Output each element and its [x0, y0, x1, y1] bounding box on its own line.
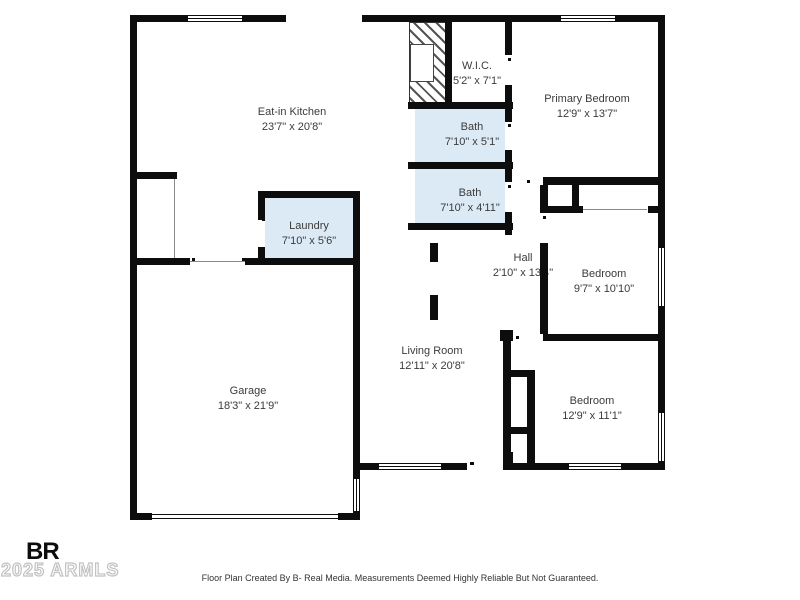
wall-segment — [258, 198, 265, 220]
floor-plan: Eat-in Kitchen 23'7" x 20'8" W.I.C. 5'2"… — [0, 0, 800, 600]
room-name: Bedroom — [574, 267, 634, 282]
wall-segment — [543, 334, 658, 341]
wall-segment — [130, 513, 152, 520]
room-name: Laundry — [282, 219, 336, 234]
room-dims: 7'10" x 5'6" — [282, 234, 336, 249]
wall-segment — [511, 370, 535, 377]
wall-segment — [503, 341, 511, 470]
wall-segment — [470, 462, 474, 465]
wall-segment — [353, 191, 360, 478]
wall-segment — [262, 218, 265, 221]
wall-segment — [445, 15, 452, 109]
room-label-living-room: Living Room 12'11" x 20'8" — [399, 344, 465, 374]
room-name: Living Room — [399, 344, 465, 359]
wall-segment — [137, 258, 190, 265]
room-label-primary-bedroom: Primary Bedroom 12'9" x 13'7" — [544, 92, 630, 122]
wall-segment — [508, 124, 511, 127]
room-name: W.I.C. — [453, 59, 501, 74]
room-dims: 7'10" x 5'1" — [445, 135, 499, 150]
water-heater-icon — [410, 44, 434, 82]
wall-segment — [543, 206, 583, 213]
room-name: Garage — [218, 384, 278, 399]
room-label-wic: W.I.C. 5'2" x 7'1" — [453, 59, 501, 89]
door-opening-line — [190, 261, 245, 262]
wall-segment — [408, 223, 513, 230]
wall-segment — [500, 330, 513, 341]
wall-segment — [511, 427, 535, 434]
wall-segment — [505, 212, 512, 235]
wall-segment — [622, 463, 665, 470]
wall-segment — [648, 206, 658, 213]
room-dims: 12'9" x 11'1" — [562, 409, 622, 424]
room-name: Bedroom — [562, 394, 622, 409]
window-symbol — [353, 478, 360, 512]
wall-segment — [408, 162, 513, 169]
wall-segment — [658, 15, 665, 247]
wall-segment — [543, 177, 658, 185]
wall-segment — [408, 102, 513, 109]
wall-segment — [192, 258, 195, 261]
wall-segment — [430, 243, 438, 262]
wall-segment — [137, 172, 177, 179]
room-dims: 12'9" x 13'7" — [544, 107, 630, 122]
disclaimer-text: Floor Plan Created By B- Real Media. Mea… — [0, 573, 800, 584]
room-name: Bath — [445, 120, 499, 135]
wall-segment — [243, 15, 286, 22]
wall-segment — [130, 15, 137, 520]
room-label-laundry: Laundry 7'10" x 5'6" — [282, 219, 336, 249]
room-label-bedroom-middle: Bedroom 9'7" x 10'10" — [574, 267, 634, 297]
door-opening-line — [583, 209, 647, 210]
wall-segment — [258, 247, 265, 260]
wall-segment — [353, 512, 360, 520]
window-symbol — [568, 463, 622, 470]
wall-segment — [540, 243, 548, 334]
wall-segment — [508, 58, 511, 61]
wall-segment — [527, 180, 530, 183]
wall-segment — [527, 377, 535, 470]
room-name: Primary Bedroom — [544, 92, 630, 107]
room-dims: 18'3" x 21'9" — [218, 399, 278, 414]
room-label-bath-upper: Bath 7'10" x 5'1" — [445, 120, 499, 150]
room-dims: 7'10" x 4'11" — [440, 201, 500, 216]
wall-segment — [503, 463, 568, 470]
room-dims: 5'2" x 7'1" — [453, 74, 501, 89]
room-dims: 12'11" x 20'8" — [399, 359, 465, 374]
wall-segment — [505, 22, 512, 55]
room-label-garage: Garage 18'3" x 21'9" — [218, 384, 278, 414]
garage-door-symbol — [152, 514, 338, 519]
room-label-bedroom-bottom: Bedroom 12'9" x 11'1" — [562, 394, 622, 424]
room-name: Bath — [440, 186, 500, 201]
wall-segment — [130, 15, 187, 22]
window-symbol — [187, 15, 243, 22]
wall-segment — [540, 185, 548, 213]
wall-segment — [362, 15, 560, 22]
wall-segment — [242, 258, 245, 261]
room-label-kitchen: Eat-in Kitchen 23'7" x 20'8" — [258, 105, 326, 135]
window-symbol — [560, 15, 616, 22]
room-name: Eat-in Kitchen — [258, 105, 326, 120]
window-symbol — [378, 463, 442, 470]
wall-segment — [516, 336, 519, 339]
wall-segment — [258, 191, 355, 198]
door-opening-line — [174, 179, 175, 259]
room-dims: 23'7" x 20'8" — [258, 120, 326, 135]
wall-segment — [505, 85, 512, 122]
wall-segment — [442, 463, 467, 470]
wall-segment — [505, 150, 512, 182]
wall-segment — [430, 295, 438, 320]
room-label-bath-lower: Bath 7'10" x 4'11" — [440, 186, 500, 216]
wall-segment — [658, 307, 665, 412]
window-symbol — [658, 412, 665, 462]
window-symbol — [658, 247, 665, 307]
wall-segment — [543, 216, 546, 219]
wall-segment — [508, 185, 511, 188]
room-dims: 9'7" x 10'10" — [574, 282, 634, 297]
